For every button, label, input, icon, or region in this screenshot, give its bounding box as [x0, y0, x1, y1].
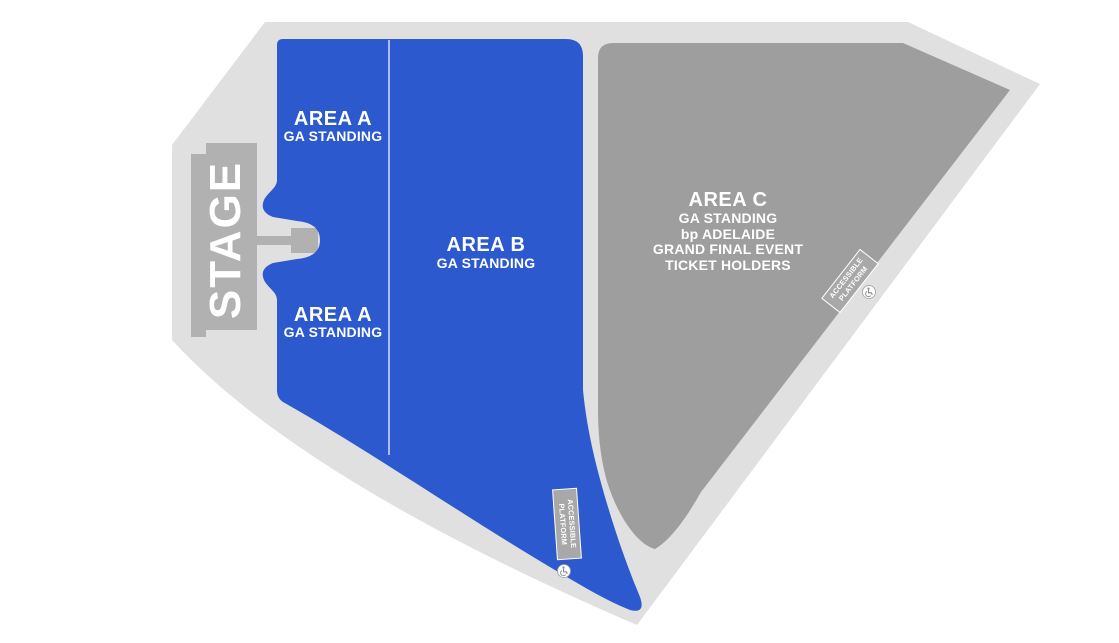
venue-map-canvas: STAGE AREA A GA STANDING AREA A GA STAND…	[0, 0, 1119, 643]
svg-text:AREA B: AREA B	[447, 234, 526, 256]
svg-text:AREA A: AREA A	[294, 108, 372, 130]
svg-text:AREA A: AREA A	[294, 304, 372, 326]
svg-text:AREA C: AREA C	[689, 189, 768, 211]
ga-standing-area-c[interactable]	[598, 43, 1010, 549]
accessible-platform-bottom[interactable]: ACCESSIBLE PLATFORM	[553, 488, 582, 560]
venue-seating-map: STAGE AREA A GA STANDING AREA A GA STAND…	[0, 0, 1119, 643]
area-b-label[interactable]: AREA B GA STANDING	[437, 234, 536, 271]
svg-text:TICKET HOLDERS: TICKET HOLDERS	[665, 257, 791, 273]
catwalk	[257, 236, 291, 245]
area-a-top-label[interactable]: AREA A GA STANDING	[284, 108, 383, 144]
svg-text:GA STANDING: GA STANDING	[679, 210, 778, 226]
wheelchair-icon	[558, 565, 571, 578]
catwalk-platform	[291, 228, 318, 253]
svg-text:GRAND FINAL EVENT: GRAND FINAL EVENT	[653, 241, 803, 257]
svg-text:GA STANDING: GA STANDING	[284, 324, 383, 340]
wheelchair-icon	[863, 286, 876, 299]
svg-text:GA STANDING: GA STANDING	[437, 255, 536, 271]
stage-label: STAGE	[201, 161, 250, 319]
area-a-bottom-label[interactable]: AREA A GA STANDING	[284, 304, 383, 340]
svg-text:GA STANDING: GA STANDING	[284, 128, 383, 144]
svg-text:bp ADELAIDE: bp ADELAIDE	[681, 226, 775, 242]
